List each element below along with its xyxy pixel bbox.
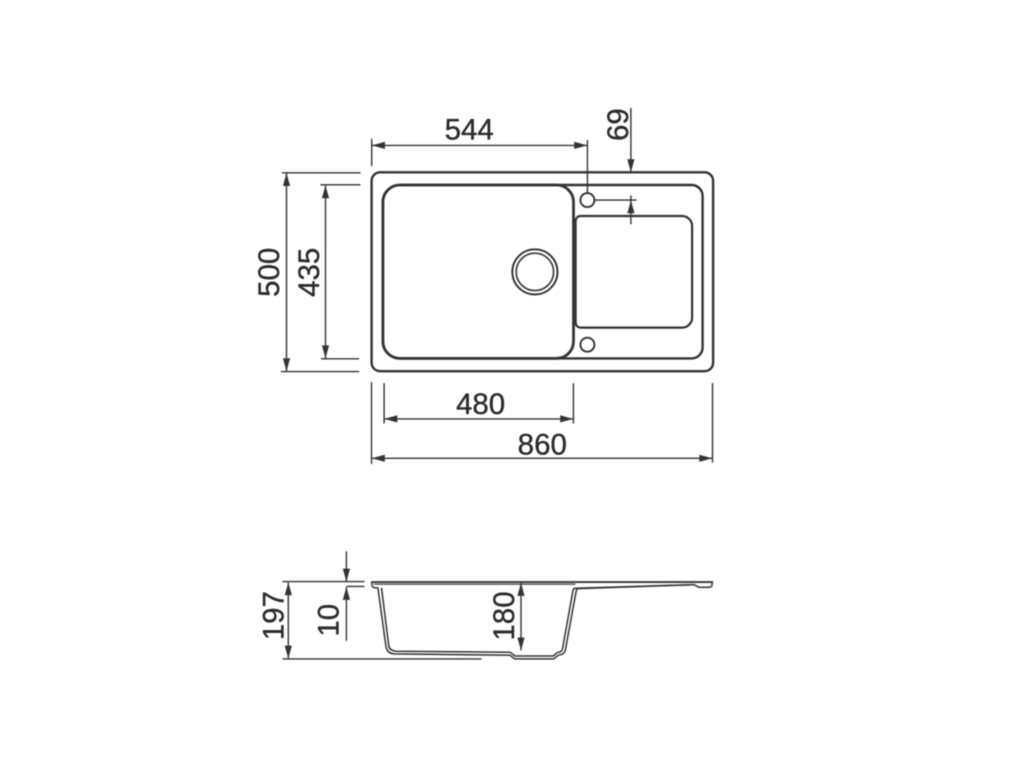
- svg-text:69: 69: [602, 108, 635, 141]
- svg-text:180: 180: [488, 591, 521, 640]
- svg-text:860: 860: [518, 429, 567, 462]
- svg-text:480: 480: [456, 388, 505, 421]
- svg-text:10: 10: [312, 604, 345, 637]
- svg-text:435: 435: [293, 248, 326, 297]
- svg-text:500: 500: [253, 248, 286, 297]
- svg-text:197: 197: [257, 591, 290, 640]
- svg-text:544: 544: [445, 113, 494, 146]
